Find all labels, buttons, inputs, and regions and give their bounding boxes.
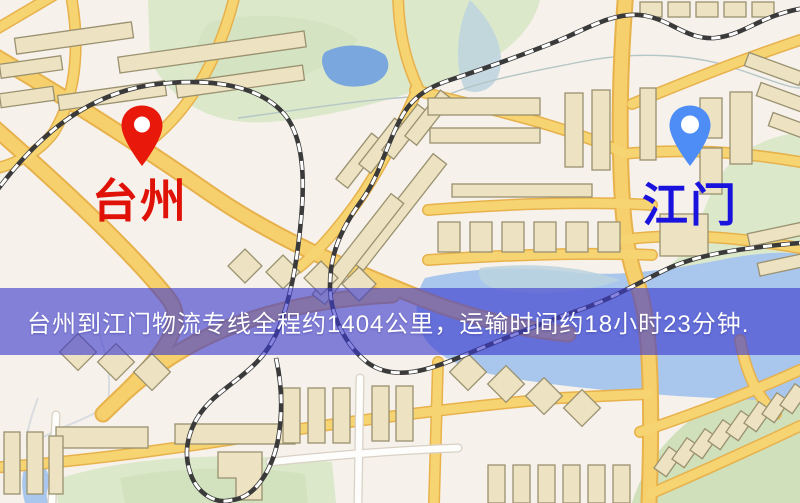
origin-marker[interactable] <box>119 104 165 168</box>
origin-label: 台州 <box>92 178 188 224</box>
destination-marker[interactable] <box>667 104 713 168</box>
map-canvas <box>0 0 800 503</box>
route-info-text: 台州到江门物流专线全程约1404公里，运输时间约18小时23分钟. <box>27 304 749 339</box>
destination-pin-icon[interactable] <box>667 104 713 168</box>
map-container: 台州 江门 台州到江门物流专线全程约1404公里，运输时间约18小时23分钟. <box>0 0 800 503</box>
origin-pin-icon[interactable] <box>119 104 165 168</box>
destination-label: 江门 <box>642 182 738 228</box>
route-info-banner: 台州到江门物流专线全程约1404公里，运输时间约18小时23分钟. <box>0 288 800 355</box>
